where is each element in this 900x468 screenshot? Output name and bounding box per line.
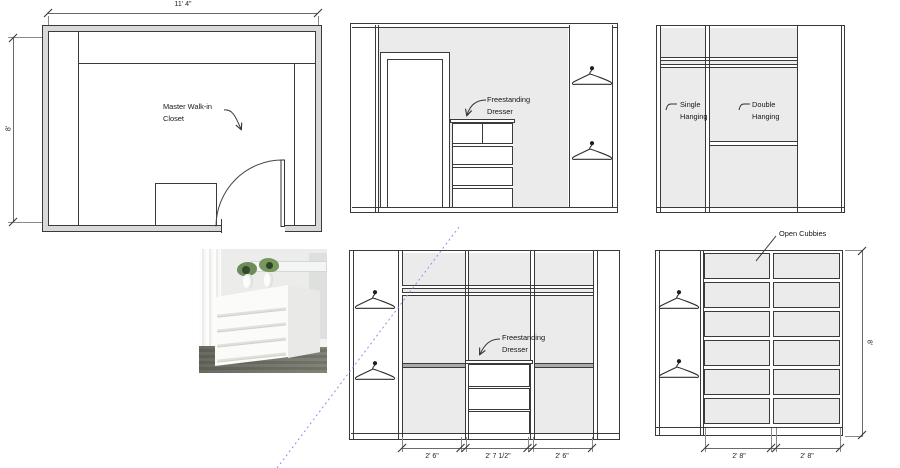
bm-panel-1 [403, 253, 465, 433]
dimension-ticks [9, 9, 866, 452]
photo-dresser-front [215, 285, 288, 366]
bm-hang-col-line [398, 251, 399, 439]
hanger-icon [659, 290, 698, 308]
bm-dresser-label-line2: Dresser [502, 344, 545, 356]
tm-frame [350, 23, 618, 213]
tm-hanging-column [569, 25, 613, 208]
hanger-icon [355, 361, 394, 379]
photo-vase [243, 274, 253, 289]
br-ext-line [845, 436, 863, 437]
tr-double-line2: Hanging [752, 111, 780, 123]
tm-dresser-label: Freestanding Dresser [487, 94, 530, 118]
br-cubbies-label-text: Open Cubbies [779, 228, 826, 240]
hanger-icon [572, 66, 611, 84]
bm-drawer-divider [469, 386, 530, 390]
bm-ext-line [533, 437, 534, 452]
tr-top-shelf [661, 57, 797, 61]
elevation-top-middle: Freestanding Dresser [0, 0, 900, 468]
door-leaf [281, 160, 285, 227]
bm-inner-left-line [353, 251, 354, 439]
cubby-cell [773, 253, 840, 279]
photo-dresser-side [288, 285, 320, 358]
bm-ext-line [592, 437, 593, 452]
plan-room-label-line2: Closet [163, 113, 212, 125]
plan-wall [42, 25, 322, 232]
bm-divider-line [465, 251, 466, 439]
br-dim-1: 2' 8" [706, 452, 772, 461]
floor-plan: 11' 4" 8' Master Walk-in Closet [0, 0, 900, 468]
tm-left-col-line [378, 25, 379, 212]
br-height-dimension: 8' [865, 334, 874, 352]
bm-dresser-leader [480, 339, 500, 354]
br-dim-line [705, 448, 840, 449]
cubby-grid [0, 0, 900, 468]
tr-double-line1: Double [752, 99, 780, 111]
bm-divider-line [530, 251, 531, 439]
door-swing-arc [216, 160, 283, 227]
hanger-icon [572, 141, 611, 159]
bm-dresser-label-line1: Freestanding [502, 332, 545, 344]
bm-dresser-body [468, 364, 530, 434]
plan-ext-line [318, 16, 319, 25]
bm-ext-line [402, 437, 403, 452]
bm-hang-col-line [402, 251, 403, 439]
cubby-cell [773, 398, 840, 424]
bm-dresser-top [465, 360, 533, 365]
bm-shelf-rod-left [403, 363, 465, 368]
tr-double-hanging-label: Double Hanging [752, 99, 780, 123]
cubby-cell [773, 340, 840, 366]
cubby-cell [704, 282, 770, 308]
bm-ext-line [466, 437, 467, 452]
plan-width-dim-line [48, 13, 318, 14]
plan-height-dimension: 8' [5, 120, 14, 138]
elevation-bottom-middle: Freestanding Dresser 2' 6" 2' 7 1/2" 2' … [0, 0, 900, 468]
plan-door-jamb [221, 219, 222, 233]
bm-panel-2 [468, 253, 530, 433]
tm-dresser-split [482, 123, 483, 144]
br-cubbies-leader [756, 236, 776, 261]
bm-dim-line [402, 448, 592, 449]
bm-divider-line [597, 251, 598, 439]
bm-dresser-label: Freestanding Dresser [502, 332, 545, 356]
tm-baseboard-line [352, 207, 617, 208]
plan-height-dim-line [13, 37, 14, 223]
bm-baseboard-line [351, 433, 619, 434]
elevation-bottom-right: Open Cubbies 2' 8" 2' 8" 8' [0, 0, 900, 468]
cubby-cell [704, 253, 770, 279]
tr-divider-line [705, 26, 706, 212]
br-ext-line [771, 428, 772, 452]
tm-back-panel [379, 28, 568, 208]
br-inner-left-line [659, 251, 660, 435]
bm-ext-line [528, 437, 529, 452]
tr-single-leader [666, 104, 677, 110]
cubby-cell [773, 282, 840, 308]
tr-baseboard-line [657, 207, 844, 208]
tm-dresser-leader [467, 100, 486, 115]
bm-dim-1: 2' 6" [402, 452, 462, 461]
tm-door-opening-inner [387, 59, 443, 208]
photo-drawer-line [217, 307, 286, 316]
br-baseboard-line [656, 427, 842, 428]
tm-top-double-line [352, 27, 617, 28]
plan-door-opening [222, 219, 285, 234]
photo-drawer-line [217, 322, 286, 331]
plan-room-label-line1: Master Walk-in [163, 101, 212, 113]
tr-right-col-line [797, 26, 798, 212]
lineart-overlay [0, 0, 900, 468]
tr-inner-left-line [660, 26, 661, 212]
tm-drawer-divider [453, 143, 513, 147]
tm-drawer-divider [453, 164, 513, 168]
photo-plant-dark [242, 266, 250, 274]
tm-dresser-top [450, 119, 515, 124]
tr-single-hang-panel [661, 28, 705, 207]
photo-drawer-line [217, 337, 286, 346]
br-hang-col-line [700, 251, 701, 435]
bm-panel-3 [534, 253, 593, 433]
tr-inner-right-line [841, 26, 842, 212]
br-cubbies-label: Open Cubbies [779, 228, 826, 240]
cubby-cell [773, 369, 840, 395]
plan-shelf-line-top [78, 63, 316, 64]
tm-drawer-divider [453, 185, 513, 189]
tr-single-line2: Hanging [680, 111, 708, 123]
bm-dim-2: 2' 7 1/2" [467, 452, 529, 461]
elevation-top-right: Single Hanging Double Hanging [0, 0, 900, 468]
bm-divider-line [534, 251, 535, 439]
tm-door-opening-outer [380, 52, 450, 208]
photo-plant-dark [266, 262, 273, 269]
tm-dresser-label-line2: Dresser [487, 106, 530, 118]
plan-room [48, 31, 316, 226]
br-ext-line [845, 250, 863, 251]
br-hang-col-line [703, 251, 704, 435]
bm-top-shelf [402, 285, 593, 289]
hanger-icon [355, 290, 394, 308]
plan-ext-line [8, 222, 42, 223]
tm-dresser-label-line1: Freestanding [487, 94, 530, 106]
tr-single-hanging-label: Single Hanging [680, 99, 708, 123]
cubby-cell [704, 340, 770, 366]
tr-top-shelf [661, 64, 797, 68]
br-ext-line [705, 428, 706, 452]
bm-dim-3: 2' 6" [532, 452, 592, 461]
plan-ext-line [48, 16, 49, 25]
br-ext-line [776, 428, 777, 452]
bm-shelf-rod-right [534, 363, 593, 368]
tr-mid-shelf [709, 141, 797, 146]
br-height-dim-line [862, 250, 863, 436]
photo-vase [264, 272, 273, 288]
tr-divider-line [709, 26, 710, 212]
cubby-cell [704, 311, 770, 337]
plan-shelf-line-left [78, 31, 79, 226]
br-dim-2: 2' 8" [774, 452, 840, 461]
closet-design-drawing: 11' 4" 8' Master Walk-in Closet [0, 0, 900, 468]
tr-single-line1: Single [680, 99, 708, 111]
cubby-cell [704, 398, 770, 424]
br-ext-line [840, 428, 841, 452]
tm-left-col-line [375, 25, 376, 212]
bm-divider-line [593, 251, 594, 439]
plan-room-label: Master Walk-in Closet [163, 101, 212, 125]
tr-double-leader [739, 104, 750, 110]
tr-double-hang-panel [709, 28, 797, 207]
bm-divider-line [468, 251, 469, 439]
cubby-cell [773, 311, 840, 337]
plan-width-dimension: 11' 4" [148, 0, 218, 9]
hanger-icon [659, 359, 698, 377]
bm-drawer-divider [469, 409, 530, 413]
plan-dresser [155, 183, 217, 226]
bm-frame [349, 250, 620, 440]
bm-top-shelf [402, 292, 593, 296]
tm-dresser-body [452, 123, 513, 208]
cubby-cell [704, 369, 770, 395]
plan-label-leader [224, 110, 241, 129]
tr-frame [656, 25, 845, 213]
plan-ext-line [8, 37, 42, 38]
dresser-product-photo [199, 249, 327, 373]
plan-shelf-line-right [294, 63, 295, 226]
bm-ext-line [461, 437, 462, 452]
br-frame [655, 250, 843, 436]
